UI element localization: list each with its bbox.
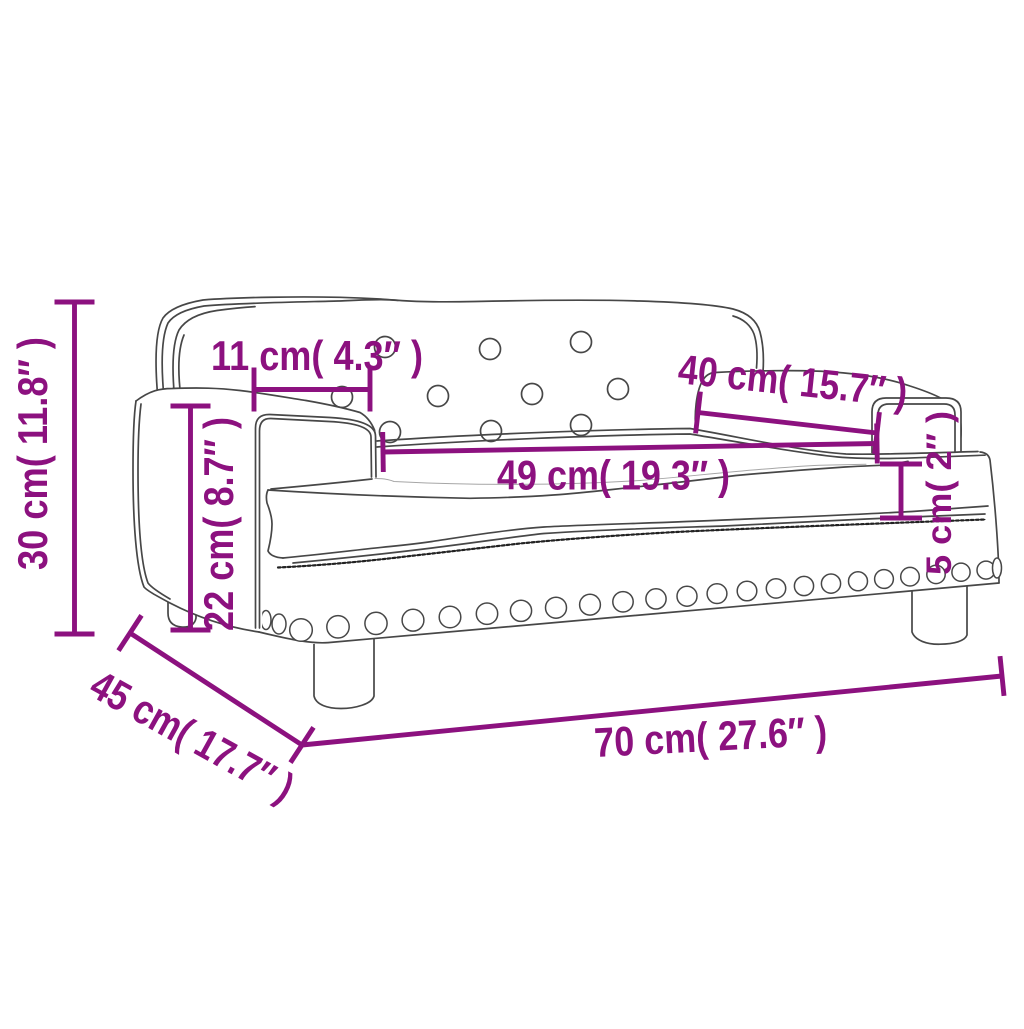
svg-text:5 cm( 2″ ): 5 cm( 2″ ) (920, 411, 959, 575)
svg-text:49 cm( 19.3″ ): 49 cm( 19.3″ ) (497, 452, 730, 499)
svg-text:30 cm( 11.8″ ): 30 cm( 11.8″ ) (9, 337, 56, 570)
svg-text:22 cm( 8.7″ ): 22 cm( 8.7″ ) (195, 417, 242, 631)
svg-text:11 cm( 4.3″ ): 11 cm( 4.3″ ) (211, 332, 423, 379)
